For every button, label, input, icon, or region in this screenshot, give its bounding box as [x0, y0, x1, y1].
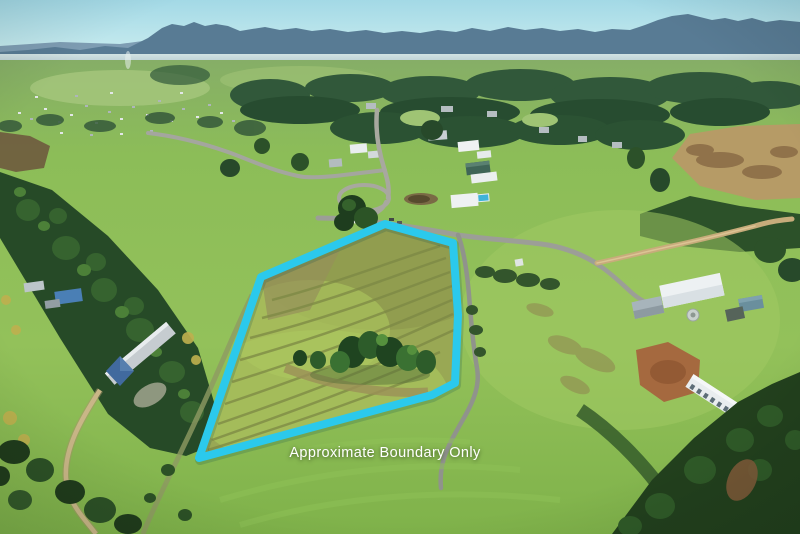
- aerial-photo-canvas: Approximate Boundary Only: [0, 0, 800, 534]
- aerial-photo: Approximate Boundary Only: [0, 0, 800, 534]
- vignette: [0, 0, 800, 534]
